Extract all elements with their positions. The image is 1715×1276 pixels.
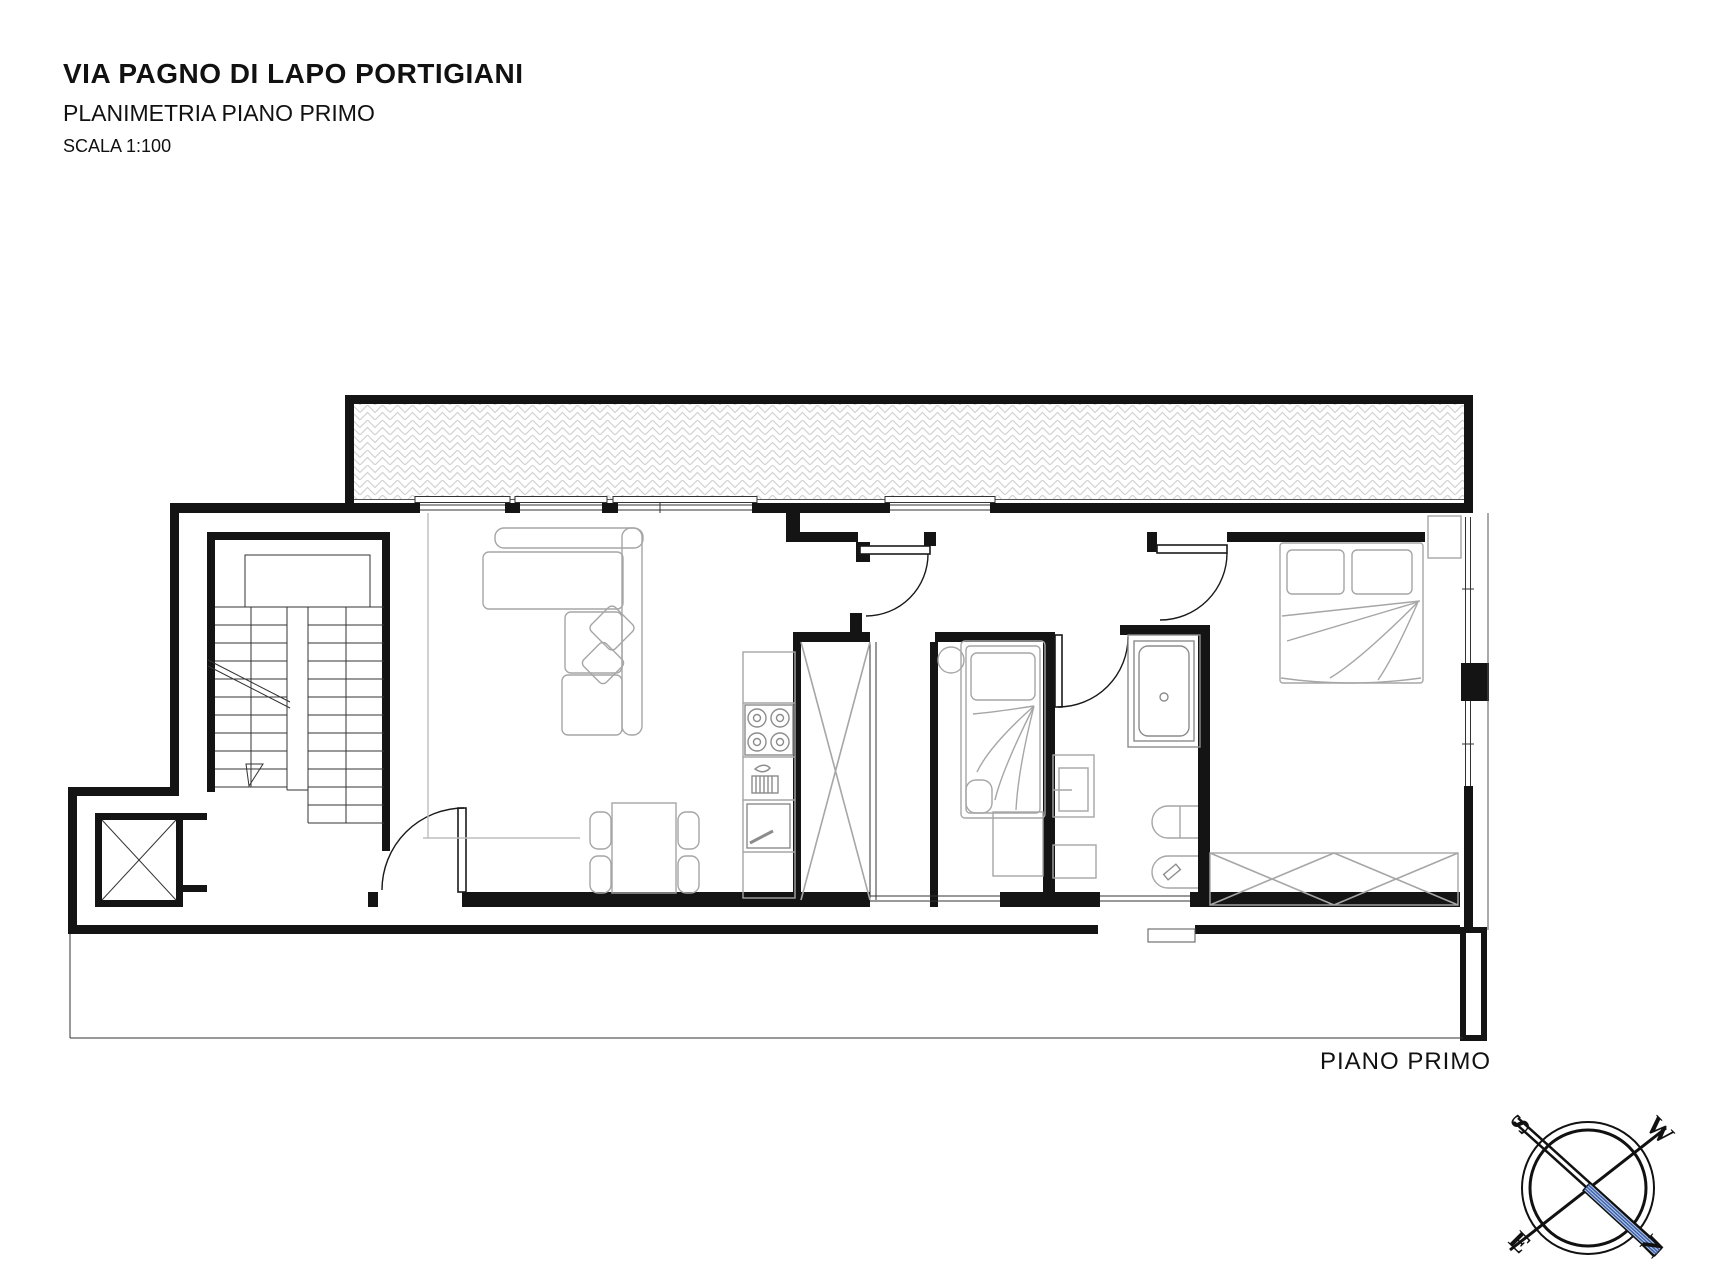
wardrobe-closet (801, 642, 876, 900)
stove-icon (745, 705, 793, 755)
compass-letter-s: S (1504, 1108, 1536, 1140)
wall-nib (1147, 532, 1157, 552)
window (1100, 896, 1190, 901)
stair-break-line (208, 666, 290, 708)
doors (382, 545, 1227, 892)
corner-wall (1463, 930, 1484, 1038)
single-bed (961, 641, 1045, 818)
window (885, 497, 995, 511)
north-wall-segment (990, 503, 1464, 513)
window (1462, 517, 1474, 663)
terrace-right-wall (1464, 395, 1473, 513)
entry-door (382, 808, 466, 892)
hall-door (860, 546, 930, 616)
bathroom-cabinet (1053, 845, 1096, 878)
compass-letter-e: E (1503, 1225, 1537, 1259)
sofa (483, 528, 643, 735)
toilet (1152, 806, 1198, 838)
terrace-hatch (354, 404, 1464, 500)
stair-break-line (208, 660, 290, 702)
west-wall-lower (68, 787, 77, 934)
small-bedroom-left-wall (930, 642, 938, 907)
north-wall-pier (505, 503, 520, 513)
lower-strip (70, 929, 1463, 1038)
window (613, 497, 757, 514)
parapet-wall (68, 925, 1098, 934)
bathroom-door (1055, 635, 1128, 707)
elevator-shaft (95, 813, 207, 907)
window (515, 497, 607, 511)
parapet-wall (1195, 925, 1460, 934)
dining-table (590, 803, 699, 893)
sink-icon (743, 757, 795, 793)
window (1462, 701, 1474, 786)
south-wall-segment (462, 892, 870, 907)
north-wall-segment (170, 503, 420, 513)
south-wall-nib (368, 892, 378, 907)
shower (1128, 635, 1200, 747)
bedroom-north-wall (1227, 532, 1425, 542)
pier (786, 513, 800, 542)
oven-icon (743, 800, 795, 848)
walls (68, 503, 1489, 1038)
window (415, 497, 510, 511)
floor-plan-svg: S N W E (0, 0, 1715, 1276)
desk (966, 780, 1043, 876)
compass-rose: S N W E (1503, 1108, 1680, 1263)
stairwell-top-wall (207, 532, 390, 540)
stair-treads-left (215, 607, 287, 787)
stairwell-right-wall (382, 540, 390, 851)
staircase (208, 555, 384, 823)
terrace (345, 395, 1473, 513)
south-wall-segment (1000, 892, 1055, 907)
furniture (483, 516, 1461, 905)
double-bed (1280, 543, 1423, 683)
south-wall-segment (1055, 892, 1100, 907)
stair-arrow-icon (246, 764, 263, 786)
bathroom-top-wall (1120, 625, 1210, 635)
north-wall-segment (752, 503, 890, 513)
bidet (1152, 856, 1198, 888)
kitchen-wall (793, 635, 801, 905)
bedside-table (938, 647, 964, 673)
wall-nib (924, 532, 936, 546)
stair-treads-right (308, 607, 384, 823)
windows (415, 497, 1488, 931)
east-wall-lower (1464, 786, 1473, 930)
bedroom-door (1157, 545, 1227, 620)
hall-wall (800, 532, 858, 542)
north-wall-pier (602, 503, 618, 513)
kitchen-counter (743, 652, 795, 898)
closet-top-wall (793, 632, 870, 642)
nightstand (1428, 516, 1461, 558)
west-step-wall (68, 787, 179, 796)
washing-machine (1053, 755, 1094, 817)
east-pillar (1461, 663, 1489, 701)
terrace-top-wall (345, 395, 1473, 404)
west-wall (170, 503, 179, 787)
page: VIA PAGNO DI LAPO PORTIGIANI PLANIMETRIA… (0, 0, 1715, 1276)
terrace-left-wall (345, 395, 354, 503)
